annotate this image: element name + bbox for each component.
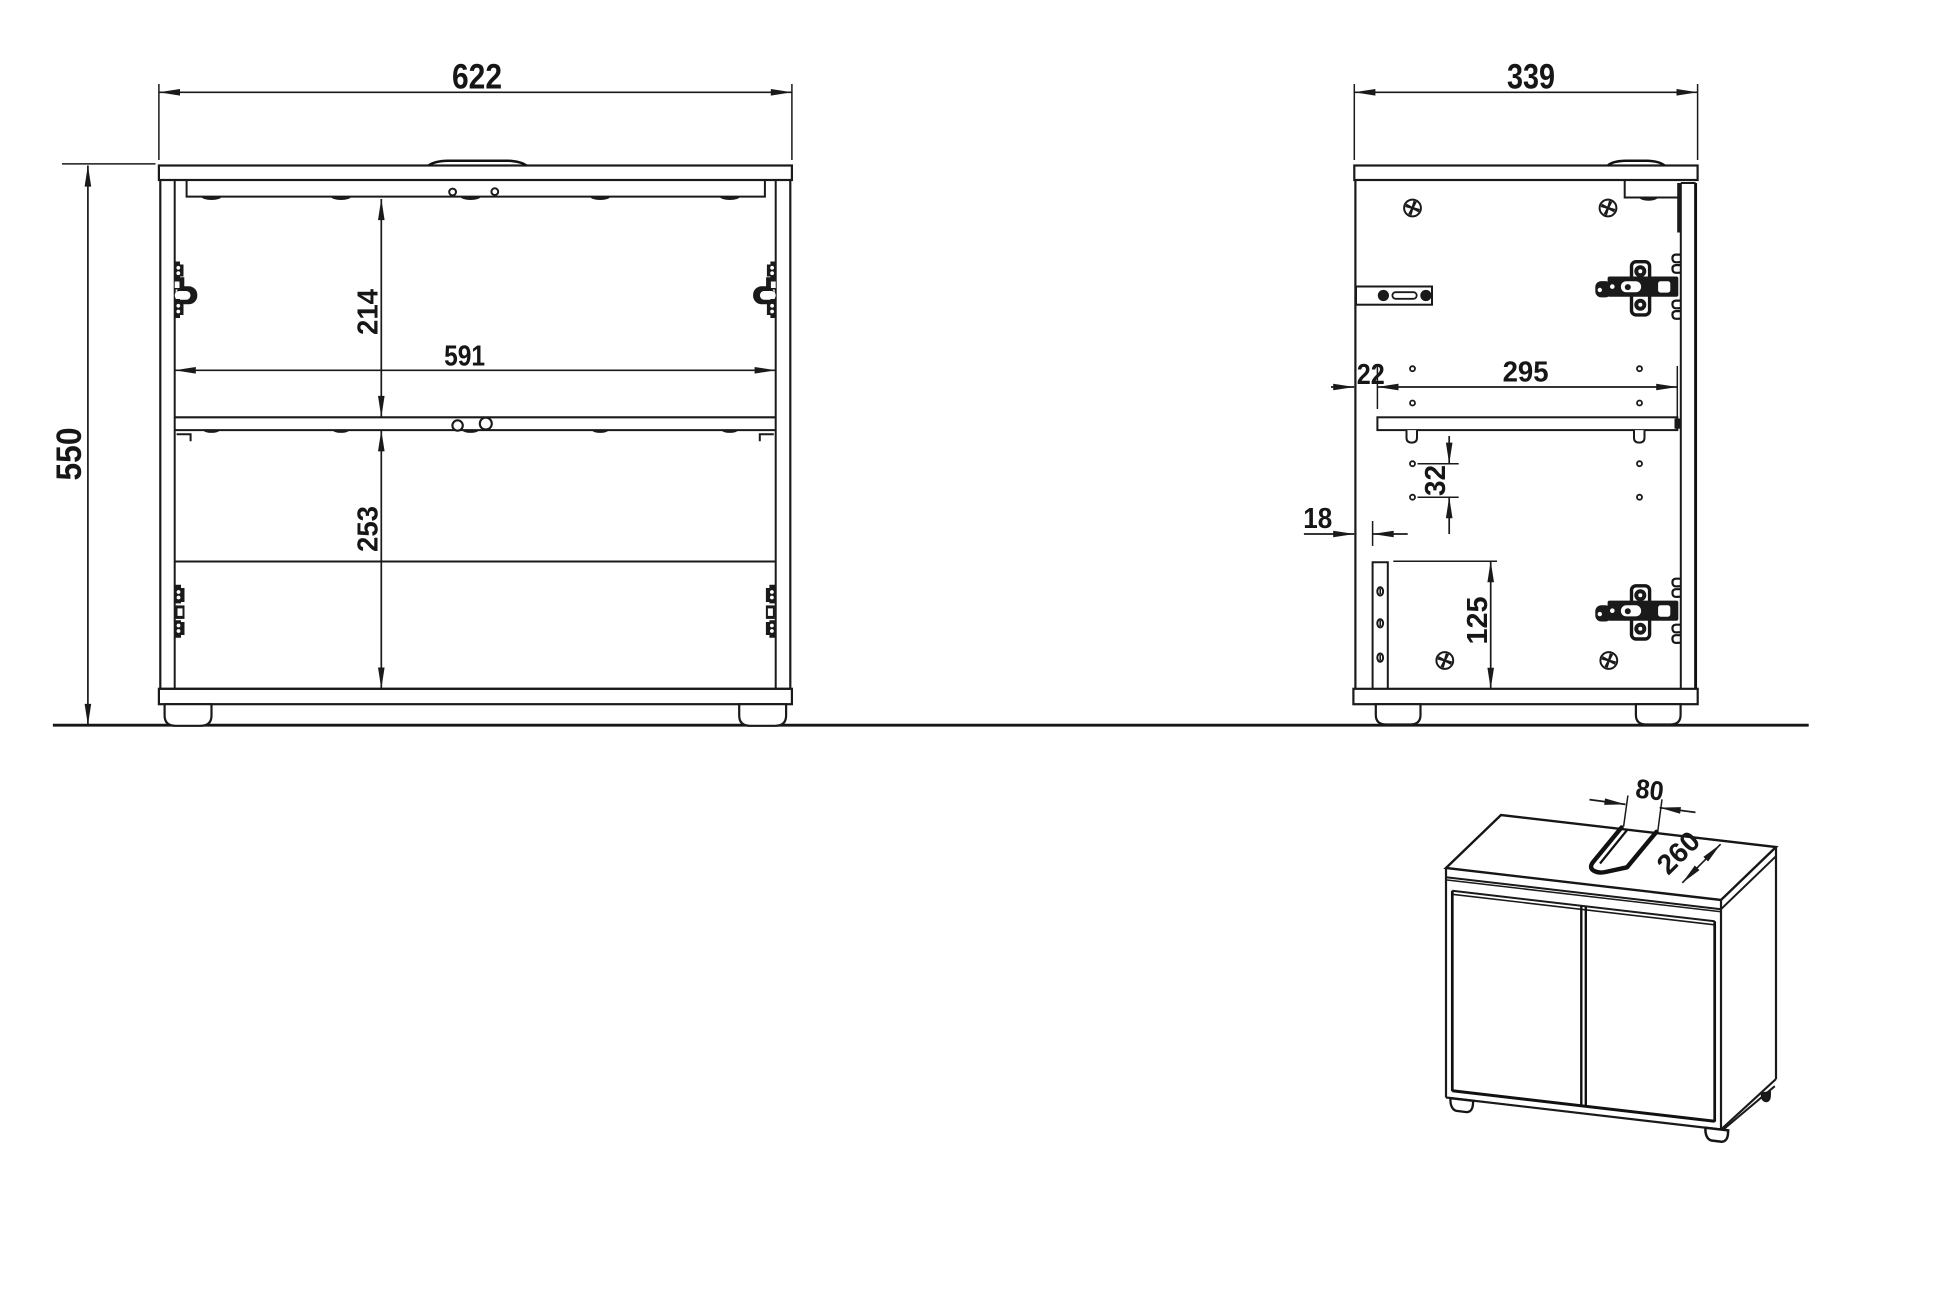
svg-text:591: 591 xyxy=(444,341,485,373)
svg-text:125: 125 xyxy=(1462,597,1494,645)
svg-text:622: 622 xyxy=(452,57,502,97)
svg-text:214: 214 xyxy=(353,289,385,335)
svg-text:32: 32 xyxy=(1420,465,1452,496)
svg-text:18: 18 xyxy=(1303,503,1332,535)
svg-text:550: 550 xyxy=(49,428,89,481)
svg-text:253: 253 xyxy=(353,506,385,552)
svg-text:339: 339 xyxy=(1507,57,1555,97)
svg-text:295: 295 xyxy=(1503,357,1549,389)
svg-text:80: 80 xyxy=(1634,774,1665,807)
